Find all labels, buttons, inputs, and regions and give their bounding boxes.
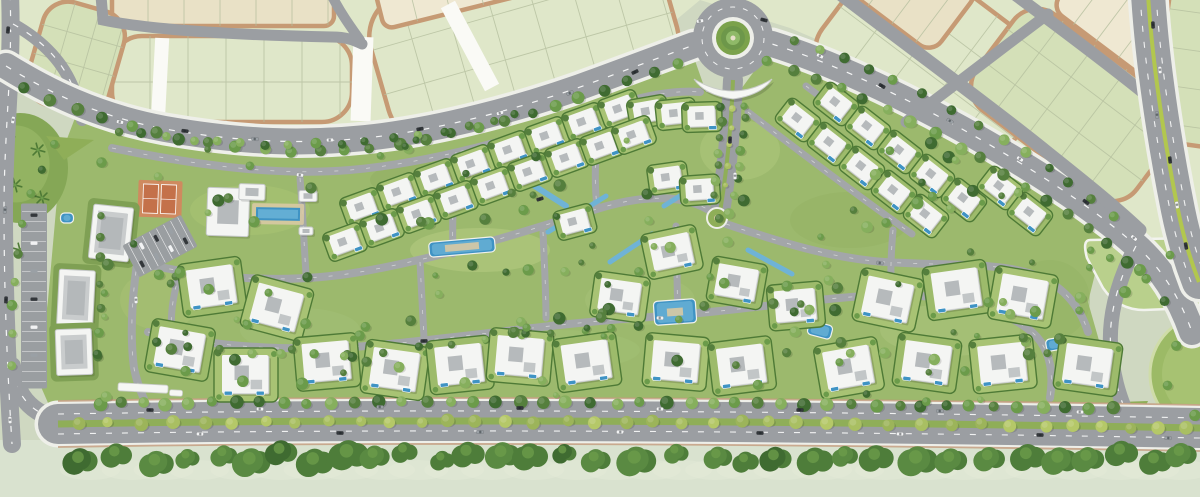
car: [1158, 66, 1162, 73]
car: [1168, 156, 1172, 163]
car: [146, 408, 153, 412]
car: [617, 430, 624, 433]
car: [4, 296, 8, 303]
car: [656, 316, 663, 320]
car: [376, 405, 383, 409]
office-building: [50, 263, 101, 333]
apartment-block: [707, 335, 777, 396]
apartment-block: [214, 348, 278, 402]
masterplan-aerial-rendering: [0, 0, 1200, 497]
south-gate-canopy: [169, 390, 182, 397]
car: [251, 137, 258, 141]
internal-street: [543, 232, 546, 318]
car: [420, 339, 427, 343]
apartment-block: [922, 259, 993, 321]
car: [1036, 433, 1043, 437]
roundabout: [693, 0, 773, 78]
car: [256, 407, 263, 411]
apartment-block: [892, 332, 963, 394]
lagoon-pool: [61, 213, 74, 223]
masterplan-stage: [0, 0, 1200, 497]
car: [3, 206, 7, 213]
apartment-block: [987, 265, 1059, 329]
villa: [705, 255, 768, 310]
car: [8, 416, 12, 423]
car: [936, 409, 943, 413]
car: [196, 432, 203, 436]
apartment-block: [813, 336, 885, 400]
apartment-block: [425, 335, 494, 395]
car: [326, 138, 333, 142]
car: [1151, 21, 1155, 28]
car: [134, 296, 138, 303]
car: [1155, 111, 1159, 118]
clubhouse-building: [299, 227, 315, 237]
car: [796, 408, 803, 412]
car: [728, 136, 732, 143]
car: [336, 431, 343, 435]
car: [1164, 436, 1171, 440]
car: [656, 407, 663, 411]
office-building: [49, 322, 99, 382]
apartment-block: [144, 318, 216, 382]
apartment-block: [552, 331, 623, 393]
car: [477, 430, 484, 433]
tennis-courts: [137, 180, 182, 219]
clubhouse-building: [239, 184, 268, 203]
car: [756, 431, 763, 435]
car: [517, 406, 524, 409]
car: [1076, 410, 1083, 414]
lagoon-pool: [653, 299, 697, 326]
car: [296, 173, 303, 177]
car: [896, 432, 903, 436]
car: [6, 26, 10, 33]
parking-lot: [21, 204, 47, 389]
villa: [681, 101, 722, 132]
car: [733, 173, 736, 180]
